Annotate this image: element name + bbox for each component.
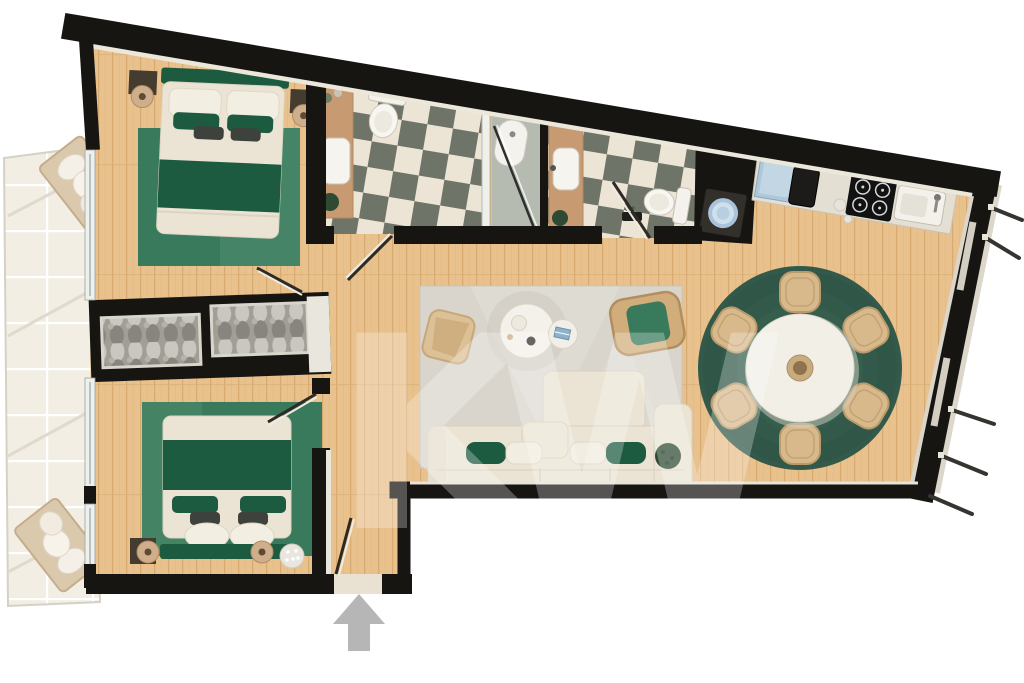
open-window-sash bbox=[930, 496, 972, 514]
dining-chair bbox=[780, 272, 820, 312]
blanket-band bbox=[157, 159, 281, 212]
washing-machine bbox=[699, 188, 748, 238]
wardrobe-end-cap bbox=[307, 296, 332, 373]
watermark-text: KW bbox=[332, 280, 781, 592]
built-in-wardrobe-right bbox=[211, 303, 309, 356]
floor-plan-canvas: KW bbox=[0, 0, 1024, 683]
open-window-sash bbox=[992, 208, 1022, 220]
dish bbox=[844, 215, 852, 223]
pillow-green bbox=[240, 496, 286, 513]
entrance-arrow-icon bbox=[333, 594, 385, 651]
built-in-wardrobe-left bbox=[101, 314, 201, 367]
dining-chair bbox=[780, 424, 820, 464]
blanket-band bbox=[163, 440, 291, 490]
table-lamp bbox=[259, 549, 266, 556]
watermark: KW bbox=[332, 280, 781, 592]
sash-hinge bbox=[982, 234, 988, 240]
hall-wall bbox=[306, 226, 334, 244]
pillow-dark bbox=[193, 126, 224, 140]
floor-plan: KW bbox=[0, 0, 1024, 683]
headboard bbox=[160, 544, 294, 559]
open-window-sash bbox=[942, 456, 986, 474]
sash-hinge bbox=[988, 204, 994, 210]
dish bbox=[834, 199, 846, 211]
sash-hinge bbox=[948, 406, 954, 412]
flower-bouquet bbox=[280, 544, 304, 568]
sash-hinge bbox=[938, 452, 944, 458]
left-wall-stub bbox=[84, 564, 96, 588]
faucet bbox=[550, 165, 556, 171]
bedroom-bottom-left bbox=[130, 402, 322, 568]
sink bbox=[322, 138, 350, 184]
pillow-green bbox=[172, 496, 218, 513]
hall-wall bbox=[654, 226, 702, 244]
shower-divider-wall bbox=[482, 104, 490, 236]
sink bbox=[553, 148, 579, 190]
table-lamp bbox=[145, 549, 152, 556]
left-wall-stub bbox=[85, 24, 93, 150]
wardrobe-hall bbox=[89, 292, 332, 382]
walk-in-shower bbox=[492, 112, 548, 238]
bedroom2-bottom-wall bbox=[86, 574, 334, 594]
centerpiece-bowl bbox=[793, 361, 807, 375]
plant bbox=[552, 210, 568, 226]
left-wall-stub bbox=[84, 486, 96, 504]
pillow-dark bbox=[230, 127, 261, 141]
wall-face bbox=[326, 450, 331, 574]
hall-wall bbox=[394, 226, 602, 244]
shower-bath2-wall bbox=[540, 114, 548, 238]
bedroom2-right-wall bbox=[312, 378, 330, 394]
open-window-sash bbox=[986, 238, 1019, 258]
open-window-sash bbox=[952, 410, 994, 424]
